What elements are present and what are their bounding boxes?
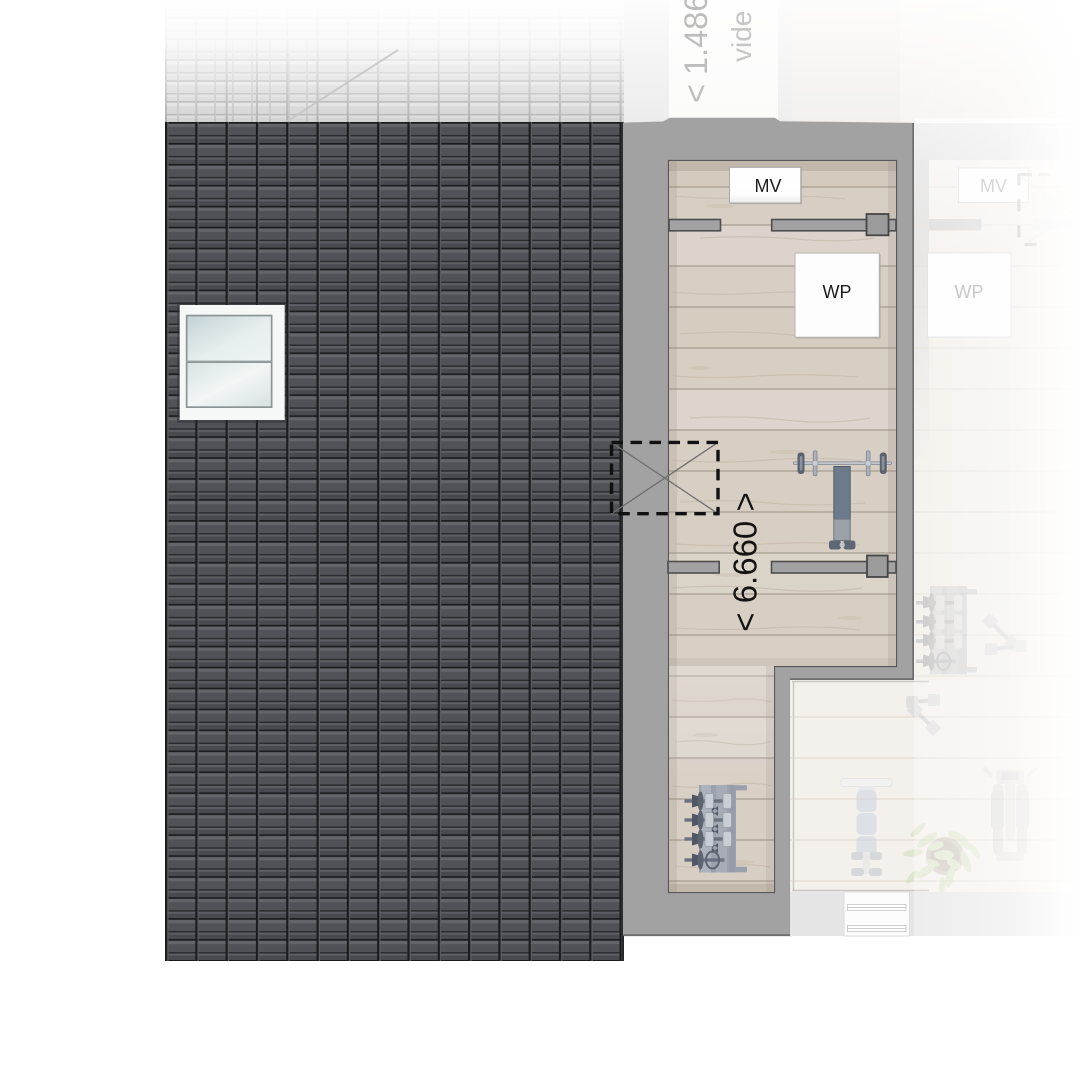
svg-text:< 6.660 >: < 6.660 > (727, 492, 764, 631)
svg-text:MV: MV (755, 176, 782, 196)
svg-text:WP: WP (823, 282, 852, 302)
svg-text:< 1.486: < 1.486 (678, 0, 714, 103)
svg-text:vide: vide (726, 11, 757, 62)
